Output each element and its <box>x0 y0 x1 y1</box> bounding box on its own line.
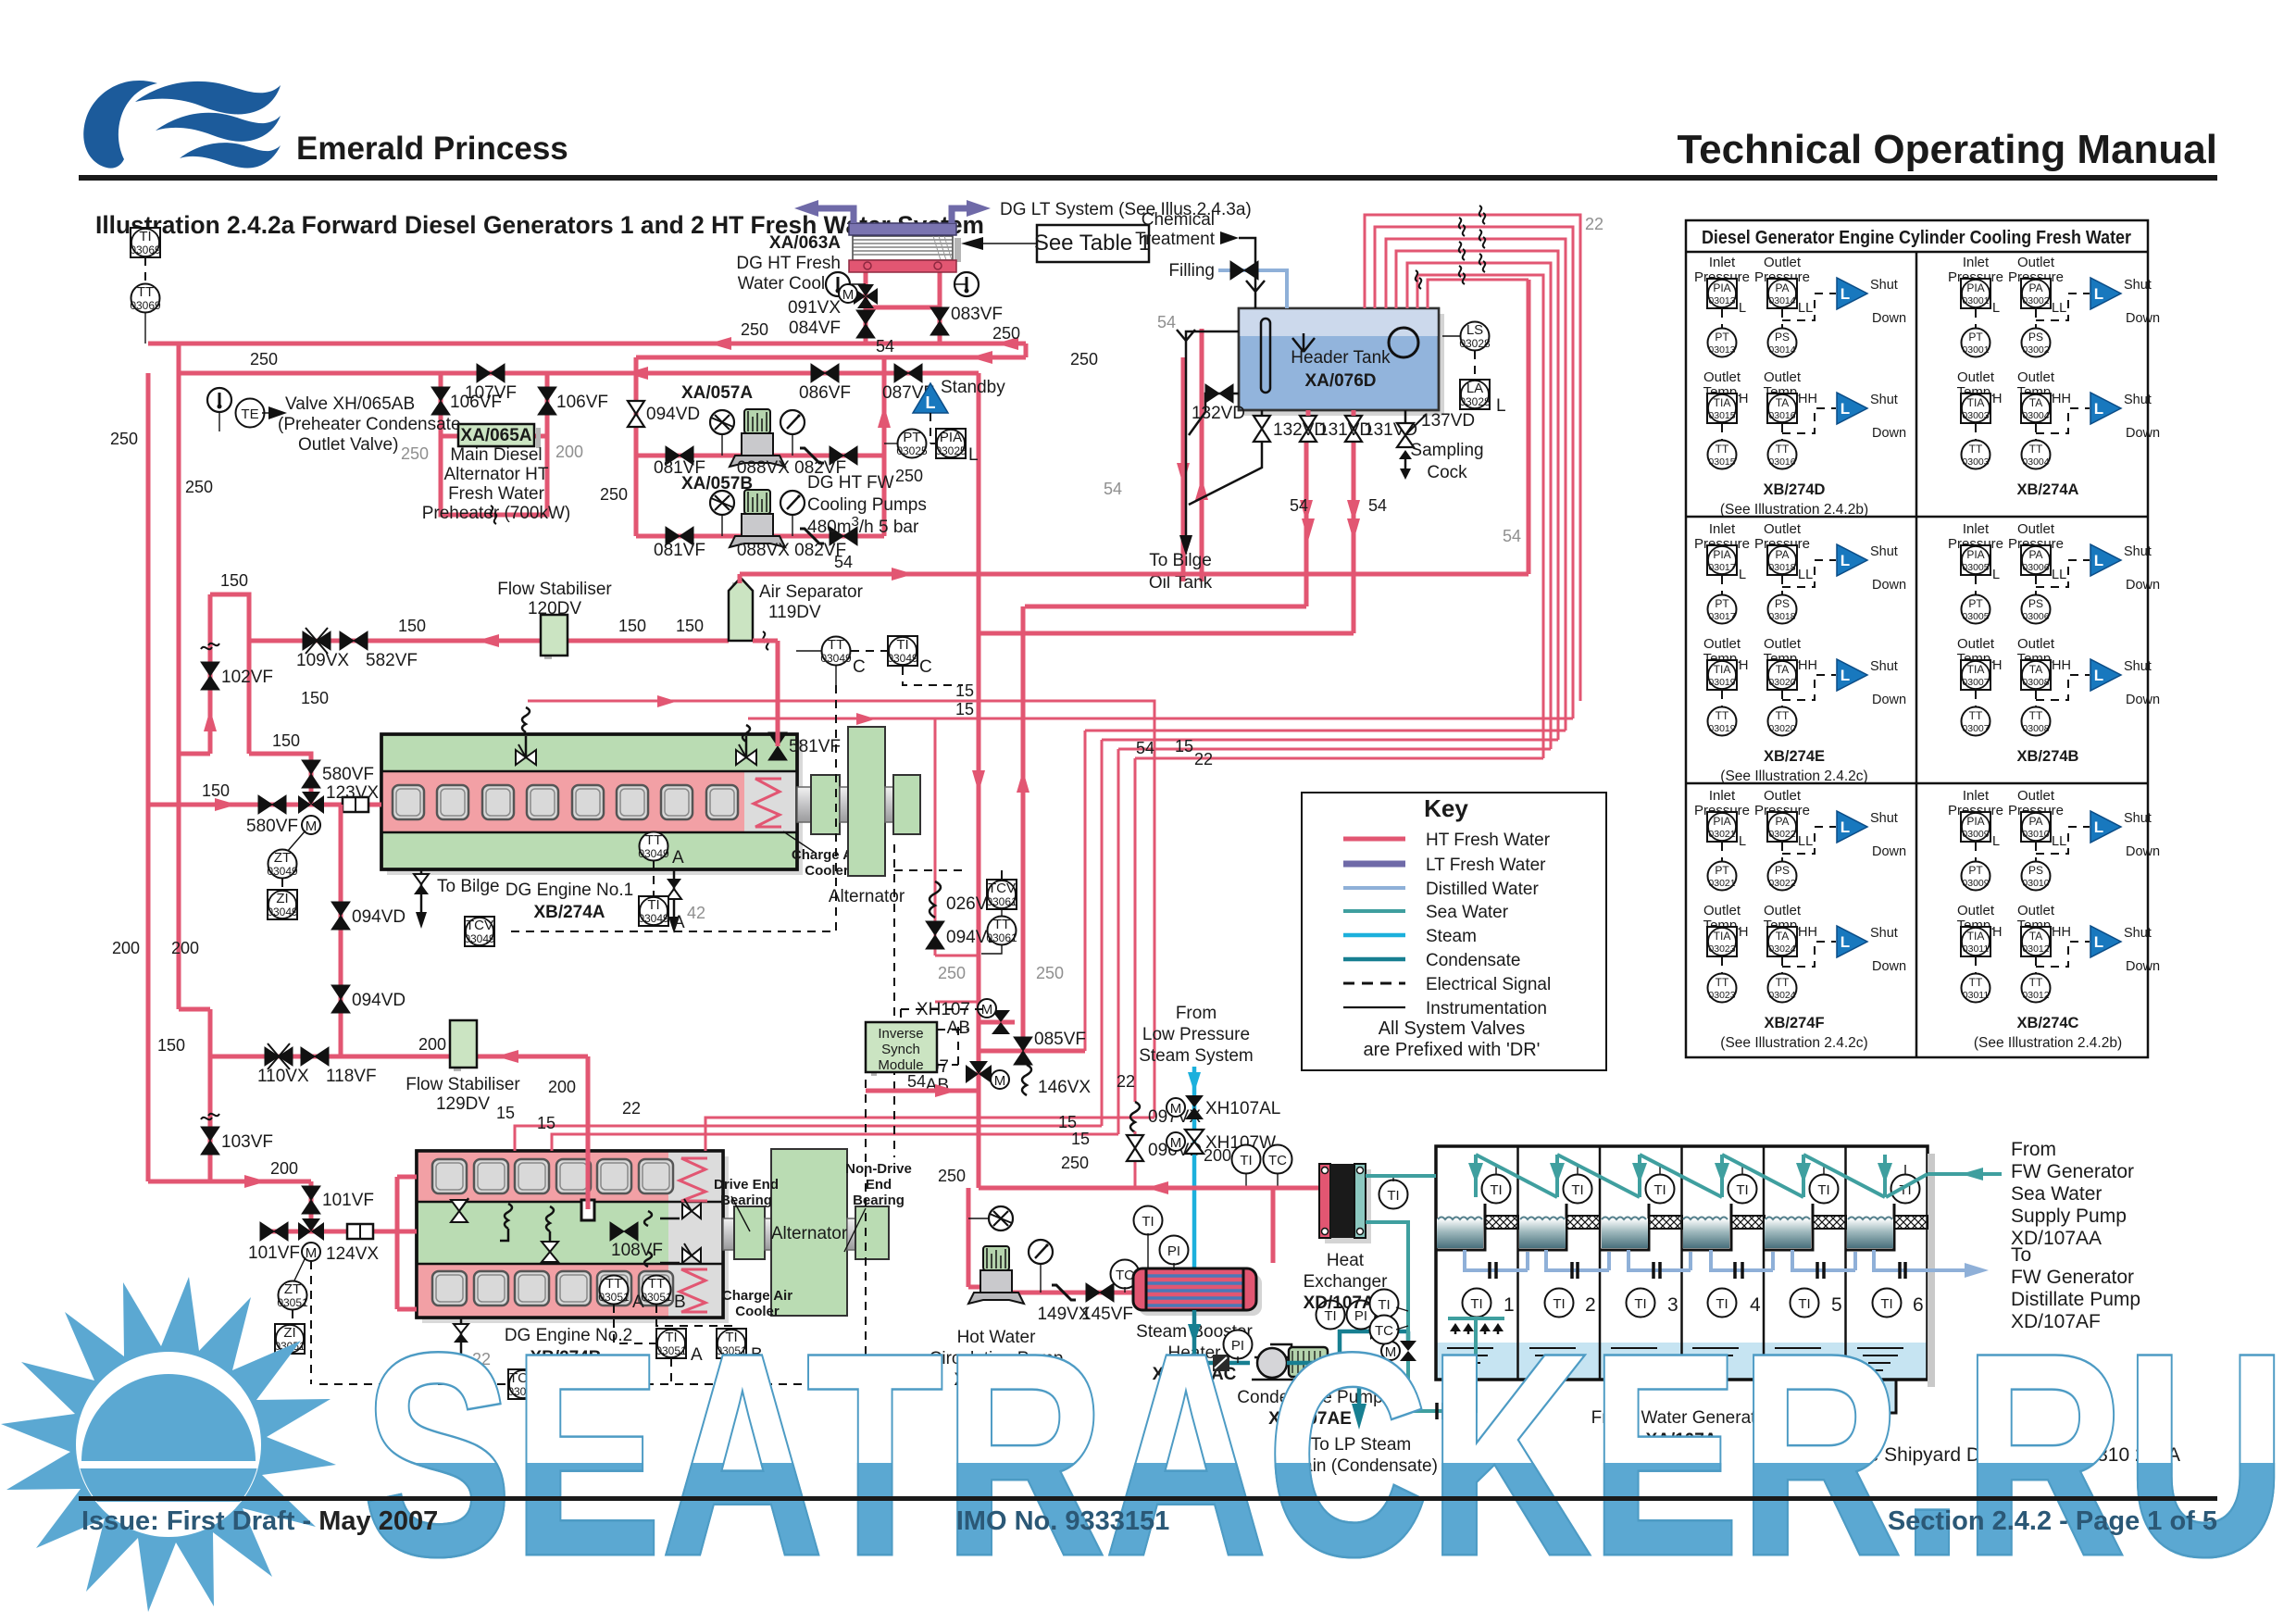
svg-text:03006: 03006 <box>2022 611 2049 622</box>
svg-text:03012: 03012 <box>2022 990 2049 1001</box>
svg-text:250: 250 <box>600 485 628 504</box>
svg-text:250: 250 <box>1061 1154 1089 1172</box>
svg-text:118VF: 118VF <box>326 1067 377 1086</box>
svg-text:102VF: 102VF <box>221 668 273 687</box>
svg-text:250: 250 <box>895 467 923 485</box>
svg-text:Air Separator: Air Separator <box>759 582 864 602</box>
svg-text:200: 200 <box>548 1078 576 1096</box>
svg-text:03009: 03009 <box>1962 829 1989 840</box>
svg-text:03010: 03010 <box>2022 878 2049 889</box>
svg-text:M: M <box>994 1073 1006 1089</box>
svg-text:Steam: Steam <box>1426 927 1477 946</box>
svg-text:200: 200 <box>112 939 140 957</box>
svg-text:TCV: TCV <box>466 918 493 933</box>
svg-text:03049: 03049 <box>638 912 669 925</box>
svg-text:581VF: 581VF <box>789 737 841 756</box>
svg-text:42: 42 <box>687 904 705 922</box>
svg-text:L: L <box>926 394 936 412</box>
svg-text:XB/274D: XB/274D <box>1764 481 1826 498</box>
svg-text:091VX: 091VX <box>788 298 841 318</box>
svg-text:03024: 03024 <box>1768 990 1795 1001</box>
svg-text:C: C <box>919 657 932 677</box>
svg-text:TI: TI <box>1653 1182 1666 1198</box>
svg-text:TI: TI <box>1817 1182 1829 1198</box>
svg-text:(See Illustration 2.4.2b): (See Illustration 2.4.2b) <box>1720 502 1868 518</box>
svg-text:Chemical: Chemical <box>1142 210 1215 230</box>
svg-text:Alternator: Alternator <box>771 1224 848 1243</box>
svg-text:See Table 1: See Table 1 <box>1034 231 1151 256</box>
svg-text:Filling: Filling <box>1168 261 1215 281</box>
svg-text:Inverse: Inverse <box>878 1026 923 1042</box>
svg-text:03069: 03069 <box>130 244 161 256</box>
svg-text:03001: 03001 <box>1962 344 1989 356</box>
svg-text:109VX: 109VX <box>296 651 349 670</box>
svg-text:TC: TC <box>1268 1153 1287 1168</box>
svg-text:15: 15 <box>537 1114 555 1132</box>
svg-text:03061: 03061 <box>986 895 1017 908</box>
svg-text:03049: 03049 <box>267 906 298 918</box>
svg-text:137VD: 137VD <box>1421 411 1475 431</box>
svg-text:XB/274A: XB/274A <box>533 903 605 922</box>
svg-text:03023: 03023 <box>1708 943 1735 955</box>
svg-text:03022: 03022 <box>1768 829 1795 840</box>
svg-text:are Prefixed with 'DR': are Prefixed with 'DR' <box>1363 1040 1540 1060</box>
svg-text:XB/274C: XB/274C <box>2017 1015 2079 1031</box>
svg-text:03005: 03005 <box>1962 562 1989 573</box>
svg-text:(See Illustration 2.4.2b): (See Illustration 2.4.2b) <box>1974 1035 2122 1051</box>
svg-text:54: 54 <box>1368 496 1387 515</box>
svg-text:M: M <box>842 287 855 303</box>
svg-text:DG HT FW: DG HT FW <box>807 473 894 493</box>
svg-text:ZT: ZT <box>274 850 291 866</box>
svg-text:TI: TI <box>1571 1182 1583 1198</box>
svg-text:580VF: 580VF <box>246 817 298 836</box>
svg-text:TI: TI <box>647 897 659 913</box>
svg-text:03002: 03002 <box>2022 344 2049 356</box>
svg-text:Flow Stabiliser: Flow Stabiliser <box>497 580 612 599</box>
svg-text:TT: TT <box>605 1276 622 1292</box>
svg-text:22: 22 <box>1117 1072 1135 1091</box>
svg-text:ZI: ZI <box>276 891 288 906</box>
svg-text:End: End <box>866 1177 892 1193</box>
svg-text:15: 15 <box>1071 1130 1090 1148</box>
svg-text:TCV: TCV <box>988 881 1016 896</box>
svg-text:54: 54 <box>1136 739 1154 757</box>
svg-text:03028: 03028 <box>1459 395 1491 408</box>
svg-text:Sampling: Sampling <box>1410 441 1483 460</box>
svg-text:200: 200 <box>171 939 199 957</box>
svg-text:TI: TI <box>896 637 908 653</box>
svg-text:582VF: 582VF <box>366 651 418 670</box>
svg-text:FW Generator: FW Generator <box>2011 1267 2134 1288</box>
svg-text:150: 150 <box>676 617 704 635</box>
svg-text:03028: 03028 <box>1459 337 1491 350</box>
svg-text:XA/076D: XA/076D <box>1304 371 1376 391</box>
svg-text:Treatment: Treatment <box>1135 230 1216 249</box>
svg-text:150: 150 <box>301 689 329 707</box>
svg-text:XB/274E: XB/274E <box>1764 748 1825 765</box>
svg-text:250: 250 <box>110 430 138 448</box>
svg-text:200: 200 <box>555 443 583 461</box>
svg-text:15: 15 <box>1175 737 1193 756</box>
svg-text:03006: 03006 <box>2022 562 2049 573</box>
svg-text:124VX: 124VX <box>326 1244 379 1264</box>
svg-text:129DV: 129DV <box>436 1094 490 1114</box>
svg-text:Outlet Valve): Outlet Valve) <box>298 435 398 455</box>
svg-text:150: 150 <box>618 617 646 635</box>
svg-text:250: 250 <box>938 1167 966 1185</box>
svg-text:123VX: 123VX <box>326 783 379 803</box>
svg-text:Exchanger: Exchanger <box>1304 1272 1389 1292</box>
svg-text:M: M <box>1170 1101 1182 1117</box>
svg-text:XB/274F: XB/274F <box>1764 1015 1824 1031</box>
svg-text:250: 250 <box>1070 350 1098 369</box>
svg-text:XA/063A: XA/063A <box>769 233 841 253</box>
svg-text:Cock: Cock <box>1427 463 1467 482</box>
svg-text:03012: 03012 <box>2022 943 2049 955</box>
svg-text:DG Engine No.1: DG Engine No.1 <box>505 881 633 900</box>
svg-text:Sea Water: Sea Water <box>2011 1183 2102 1205</box>
svg-text:200: 200 <box>418 1035 446 1054</box>
svg-text:03008: 03008 <box>2022 677 2049 688</box>
svg-text:A: A <box>673 913 685 932</box>
svg-text:Technical Operating Manual: Technical Operating Manual <box>1677 127 2217 172</box>
svg-text:250: 250 <box>992 324 1020 343</box>
svg-text:Cooling Pumps: Cooling Pumps <box>807 495 927 515</box>
svg-text:150: 150 <box>398 617 426 635</box>
svg-text:03015: 03015 <box>1708 410 1735 421</box>
svg-text:250: 250 <box>401 444 429 463</box>
svg-text:03049: 03049 <box>887 652 918 665</box>
svg-text:M: M <box>306 818 318 834</box>
svg-text:ZT: ZT <box>284 1281 301 1297</box>
svg-text:Bearing: Bearing <box>720 1193 772 1208</box>
svg-text:TI: TI <box>1490 1182 1502 1198</box>
svg-text:Instrumentation: Instrumentation <box>1426 999 1547 1018</box>
svg-text:TI: TI <box>1736 1182 1748 1198</box>
svg-text:TT: TT <box>645 832 662 848</box>
svg-text:03013: 03013 <box>1708 344 1735 356</box>
svg-text:106VF: 106VF <box>556 393 608 412</box>
svg-text:150: 150 <box>220 571 248 590</box>
svg-text:(Preheater Condensate: (Preheater Condensate <box>278 415 461 434</box>
svg-text:03014: 03014 <box>1768 344 1795 356</box>
svg-text:Header Tank: Header Tank <box>1291 348 1391 368</box>
svg-text:54: 54 <box>876 337 894 356</box>
svg-text:200: 200 <box>270 1159 298 1178</box>
svg-text:03008: 03008 <box>2022 723 2049 734</box>
svg-text:081VF: 081VF <box>654 541 705 560</box>
svg-text:Bearing: Bearing <box>853 1193 905 1208</box>
svg-text:LA: LA <box>1466 381 1483 396</box>
svg-text:03002: 03002 <box>2022 295 2049 306</box>
svg-text:DG HT Fresh: DG HT Fresh <box>736 254 841 273</box>
svg-text:03017: 03017 <box>1708 562 1735 573</box>
svg-text:Supply Pump: Supply Pump <box>2011 1206 2127 1227</box>
svg-text:54: 54 <box>1290 496 1308 515</box>
svg-text:PIA: PIA <box>940 430 962 445</box>
svg-text:150: 150 <box>157 1036 185 1055</box>
svg-text:094VD: 094VD <box>352 991 406 1010</box>
svg-text:03007: 03007 <box>1962 723 1989 734</box>
svg-text:03017: 03017 <box>1708 611 1735 622</box>
svg-text:132VD: 132VD <box>1192 404 1245 423</box>
svg-text:Diesel Generator Engine Cylind: Diesel Generator Engine Cylinder Cooling… <box>1702 228 2131 248</box>
svg-text:HT Fresh Water: HT Fresh Water <box>1426 831 1551 850</box>
svg-text:03019: 03019 <box>1708 723 1735 734</box>
svg-text:110VX: 110VX <box>257 1067 309 1086</box>
svg-text:TT: TT <box>828 637 844 653</box>
svg-text:03019: 03019 <box>1708 677 1735 688</box>
svg-text:LT Fresh Water: LT Fresh Water <box>1426 856 1546 875</box>
svg-text:03069: 03069 <box>130 299 161 312</box>
svg-text:XA/057A: XA/057A <box>681 383 753 403</box>
svg-text:TT: TT <box>137 284 154 300</box>
svg-text:Flow Stabiliser: Flow Stabiliser <box>406 1075 520 1094</box>
svg-text:Heat: Heat <box>1327 1251 1365 1270</box>
svg-text:All System Valves: All System Valves <box>1379 1018 1526 1039</box>
svg-text:085VF: 085VF <box>1034 1030 1086 1049</box>
svg-text:ZI: ZI <box>283 1325 295 1341</box>
svg-text:To Bilge: To Bilge <box>1149 551 1212 570</box>
svg-text:15: 15 <box>1058 1113 1077 1131</box>
svg-text:03049: 03049 <box>820 652 852 665</box>
svg-text:C: C <box>853 657 866 677</box>
svg-text:03016: 03016 <box>1768 410 1795 421</box>
svg-text:PT: PT <box>903 430 920 445</box>
svg-text:15: 15 <box>955 681 974 700</box>
svg-text:FW Generator: FW Generator <box>2011 1161 2134 1182</box>
svg-text:150: 150 <box>272 731 300 750</box>
svg-text:To: To <box>2011 1244 2031 1266</box>
svg-text:03011: 03011 <box>1963 990 1990 1001</box>
svg-text:To Bilge: To Bilge <box>437 877 500 896</box>
svg-text:15: 15 <box>496 1104 515 1122</box>
svg-text:03016: 03016 <box>1768 456 1795 468</box>
svg-text:L: L <box>968 445 979 465</box>
svg-text:480m3/h 5 bar: 480m3/h 5 bar <box>807 514 919 537</box>
svg-text:54: 54 <box>1104 480 1122 498</box>
svg-text:03010: 03010 <box>2022 829 2049 840</box>
svg-text:Distilled Water: Distilled Water <box>1426 880 1539 899</box>
svg-text:XH107AL: XH107AL <box>1205 1099 1280 1118</box>
svg-text:03018: 03018 <box>1768 611 1795 622</box>
svg-text:Sea Water: Sea Water <box>1426 903 1509 922</box>
svg-text:TC: TC <box>1116 1268 1134 1283</box>
svg-text:Valve XH/065AB: Valve XH/065AB <box>285 394 415 414</box>
svg-text:03021: 03021 <box>1708 878 1735 889</box>
svg-text:119DV: 119DV <box>768 603 821 622</box>
svg-text:03011: 03011 <box>1963 943 1990 955</box>
svg-text:XB/274A: XB/274A <box>2017 481 2079 498</box>
svg-text:03020: 03020 <box>1768 723 1795 734</box>
svg-text:101VF: 101VF <box>322 1191 374 1210</box>
svg-text:Alternator HT: Alternator HT <box>444 465 549 484</box>
svg-text:A: A <box>672 848 684 868</box>
svg-text:Key: Key <box>1424 794 1468 822</box>
svg-text:Fresh Water: Fresh Water <box>448 484 544 504</box>
svg-text:IMO No. 9333151: IMO No. 9333151 <box>956 1506 1170 1536</box>
svg-text:250: 250 <box>1036 964 1064 982</box>
svg-text:Condensate: Condensate <box>1426 951 1520 970</box>
svg-text:03015: 03015 <box>1708 456 1735 468</box>
svg-text:Synch: Synch <box>881 1042 920 1057</box>
svg-text:108VF: 108VF <box>611 1241 663 1260</box>
svg-text:54: 54 <box>834 553 853 571</box>
svg-text:PI: PI <box>1167 1243 1180 1259</box>
svg-text:03049: 03049 <box>638 847 669 860</box>
svg-text:086VF: 086VF <box>799 383 851 403</box>
svg-text:TE: TE <box>241 406 258 422</box>
svg-text:TI: TI <box>1142 1214 1154 1230</box>
svg-text:TI: TI <box>1240 1153 1252 1168</box>
svg-text:03003: 03003 <box>1962 456 1989 468</box>
svg-text:Non-Drive: Non-Drive <box>845 1161 912 1177</box>
svg-text:03061: 03061 <box>986 931 1017 944</box>
svg-text:XA/065A: XA/065A <box>460 426 531 445</box>
svg-text:TI: TI <box>139 229 151 244</box>
svg-text:22: 22 <box>1194 750 1213 768</box>
svg-text:Drive End: Drive End <box>714 1177 779 1193</box>
svg-text:03004: 03004 <box>2022 410 2049 421</box>
svg-text:03022: 03022 <box>1768 878 1795 889</box>
svg-text:03020: 03020 <box>1768 677 1795 688</box>
svg-text:(See Illustration 2.4.2c): (See Illustration 2.4.2c) <box>1720 768 1867 784</box>
svg-text:03014: 03014 <box>1768 295 1795 306</box>
svg-text:03049: 03049 <box>464 932 495 945</box>
svg-text:03003: 03003 <box>1962 410 1989 421</box>
svg-text:03001: 03001 <box>1962 295 1989 306</box>
svg-text:(See Illustration 2.4.2c): (See Illustration 2.4.2c) <box>1720 1035 1867 1051</box>
svg-text:580VF: 580VF <box>322 765 374 784</box>
svg-text:088VX 082VF: 088VX 082VF <box>737 541 846 560</box>
svg-text:150: 150 <box>202 781 230 800</box>
svg-text:03004: 03004 <box>2022 456 2049 468</box>
svg-text:54: 54 <box>1157 313 1176 331</box>
svg-text:03005: 03005 <box>1962 611 1989 622</box>
svg-text:03009: 03009 <box>1962 878 1989 889</box>
svg-text:084VF: 084VF <box>789 319 841 338</box>
svg-text:094VD: 094VD <box>352 907 406 927</box>
svg-text:From: From <box>2011 1139 2056 1160</box>
svg-text:Low Pressure: Low Pressure <box>1142 1025 1250 1044</box>
svg-text:250: 250 <box>250 350 278 369</box>
svg-text:M: M <box>1170 1135 1182 1151</box>
svg-text:15: 15 <box>955 700 974 718</box>
svg-text:03007: 03007 <box>1962 677 1989 688</box>
svg-text:Section 2.4.2 - Page 1 of 5: Section 2.4.2 - Page 1 of 5 <box>1888 1506 2217 1536</box>
svg-text:250: 250 <box>938 964 966 982</box>
svg-text:03013: 03013 <box>1708 295 1735 306</box>
svg-text:Main Diesel: Main Diesel <box>450 445 542 465</box>
svg-text:250: 250 <box>741 320 768 339</box>
svg-text:101VF: 101VF <box>248 1243 300 1263</box>
svg-text:22: 22 <box>1585 215 1603 233</box>
svg-text:120DV: 120DV <box>528 599 581 618</box>
svg-text:03025: 03025 <box>896 444 928 457</box>
svg-text:03024: 03024 <box>1768 943 1795 955</box>
svg-text:Electrical Signal: Electrical Signal <box>1426 975 1551 994</box>
svg-text:54: 54 <box>1503 527 1521 545</box>
svg-text:Emerald Princess: Emerald Princess <box>296 131 568 167</box>
svg-text:XB/274B: XB/274B <box>2017 748 2079 765</box>
svg-text:TT: TT <box>648 1276 665 1292</box>
svg-text:03018: 03018 <box>1768 562 1795 573</box>
svg-text:M: M <box>306 1245 318 1261</box>
svg-text:03051: 03051 <box>277 1296 308 1309</box>
svg-text:Cooler: Cooler <box>805 863 849 879</box>
svg-text:From: From <box>1176 1004 1217 1023</box>
svg-text:L: L <box>1496 396 1506 416</box>
svg-text:TT: TT <box>993 917 1010 932</box>
svg-text:094VD: 094VD <box>646 405 700 424</box>
svg-text:22: 22 <box>622 1099 641 1118</box>
svg-text:083VF: 083VF <box>951 305 1003 324</box>
svg-text:Module: Module <box>878 1057 923 1073</box>
svg-text:TI: TI <box>1387 1188 1399 1204</box>
svg-text:03049: 03049 <box>267 865 298 878</box>
svg-text:LS: LS <box>1466 322 1483 338</box>
svg-text:03021: 03021 <box>1708 829 1735 840</box>
svg-text:Steam System: Steam System <box>1139 1046 1254 1066</box>
svg-text:103VF: 103VF <box>221 1132 273 1152</box>
svg-text:Issue: First Draft - May 200: Issue: First Draft - May 2007 <box>81 1506 438 1536</box>
svg-text:03023: 03023 <box>1708 990 1735 1001</box>
svg-text:250: 250 <box>185 478 213 496</box>
svg-text:146VX: 146VX <box>1038 1078 1091 1097</box>
svg-text:107VF: 107VF <box>465 383 517 403</box>
svg-text:03025: 03025 <box>935 444 967 457</box>
svg-text:Standby: Standby <box>941 378 1005 397</box>
